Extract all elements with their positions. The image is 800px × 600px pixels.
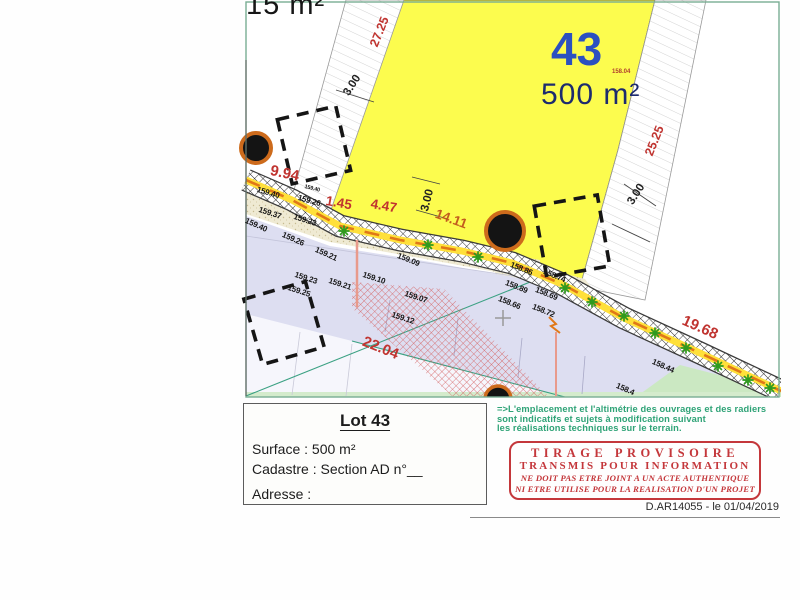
note-line: les réalisations techniques sur le terra…	[497, 423, 682, 433]
tree-icon	[560, 283, 570, 293]
tree-icon	[713, 361, 723, 371]
tree-icon	[650, 328, 660, 338]
stamp-line: NE DOIT PAS ETRE JOINT A UN ACTE AUTHENT…	[511, 473, 759, 484]
lot-adresse: Adresse :	[252, 486, 486, 502]
provisional-print-stamp: TIRAGE PROVISOIRE TRANSMIS POUR INFORMAT…	[509, 441, 761, 500]
tree-icon	[681, 343, 691, 353]
parcel-15-area-label: 15 m²	[246, 0, 325, 20]
footer-rule	[470, 517, 780, 518]
survey-plan-page: 15 m² 43 158.04 500 m² 27.25 3.00 9.94 1…	[0, 0, 800, 600]
stamp-line: TRANSMIS POUR INFORMATION	[511, 460, 759, 473]
lot-info-box: Lot 43 Surface : 500 m² Cadastre : Secti…	[243, 403, 487, 505]
lot-cadastre: Cadastre : Section AD n°__	[252, 461, 486, 477]
tree-icon	[743, 375, 753, 385]
note-line: =>L'emplacement et l'altimétrie des ouvr…	[497, 404, 766, 414]
lot-surface: Surface : 500 m²	[252, 441, 486, 457]
manhole-icon	[486, 212, 524, 250]
parcel-43-area: 500 m²	[541, 80, 640, 110]
stamp-line: NI ETRE UTILISE POUR LA REALISATION D'UN…	[511, 484, 759, 495]
stamp-line: TIRAGE PROVISOIRE	[511, 446, 759, 460]
parcel-43-spot-elevation: 158.04	[612, 69, 630, 75]
lot-title: Lot 43	[244, 411, 486, 431]
tree-icon	[473, 252, 483, 262]
parcel-43-number: 43	[551, 26, 602, 72]
plan-clip-group	[241, 0, 781, 412]
tree-icon	[619, 311, 629, 321]
tree-icon	[423, 240, 433, 250]
document-reference: D.AR14055 - le 01/04/2019	[646, 501, 779, 513]
tree-icon	[587, 297, 597, 307]
tree-icon	[765, 383, 775, 393]
tree-icon	[339, 226, 349, 236]
